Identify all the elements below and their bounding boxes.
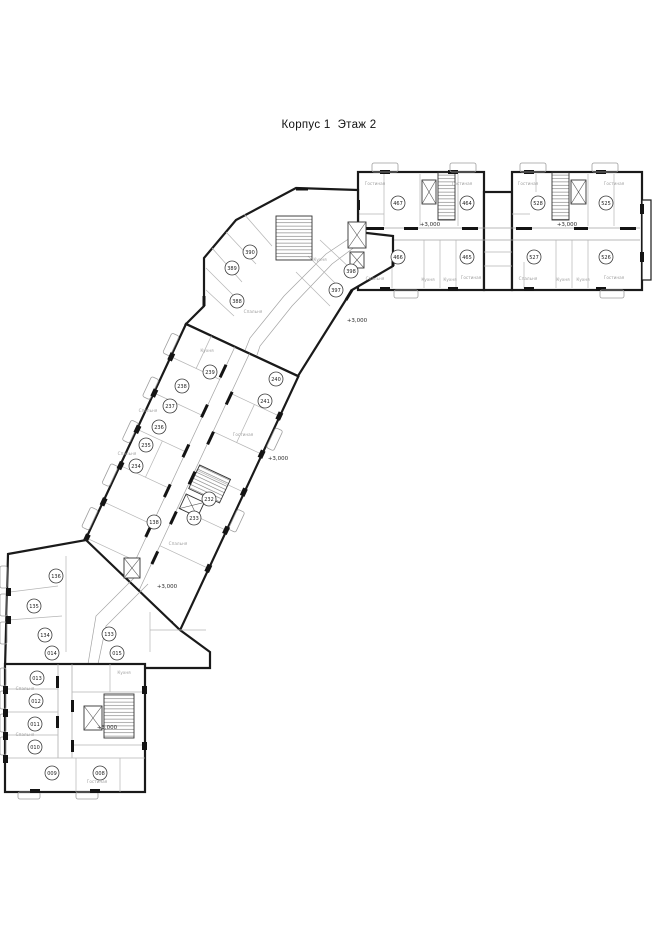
unit-marker-241[interactable]: 241: [258, 394, 272, 408]
elevator-shaft-corner: [348, 222, 366, 268]
stairwell-corner: [276, 216, 312, 260]
room-label: Гостиная: [604, 181, 625, 186]
unit-marker-238[interactable]: 238: [175, 379, 189, 393]
room-label: Спальня: [169, 541, 188, 546]
stairwell-south: [104, 694, 134, 738]
unit-marker-011[interactable]: 011: [28, 717, 42, 731]
unit-number: 237: [165, 404, 175, 410]
unit-marker-397[interactable]: 397: [329, 283, 343, 297]
unit-number: 466: [393, 255, 403, 261]
unit-marker-527[interactable]: 527: [527, 250, 541, 264]
elevator-shaft-transition: [124, 558, 140, 578]
elevator-shaft-a: [422, 180, 436, 204]
unit-marker-008[interactable]: 008: [93, 766, 107, 780]
room-label: Спальня: [366, 276, 385, 281]
unit-marker-009[interactable]: 009: [45, 766, 59, 780]
unit-marker-013[interactable]: 013: [30, 671, 44, 685]
unit-marker-467[interactable]: 467: [391, 196, 405, 210]
unit-marker-388[interactable]: 388: [230, 294, 244, 308]
room-label: Кухня: [443, 277, 457, 282]
unit-marker-389[interactable]: 389: [225, 261, 239, 275]
unit-marker-526[interactable]: 526: [599, 250, 613, 264]
unit-number: 232: [204, 497, 214, 503]
unit-number: 015: [112, 651, 122, 657]
unit-number: 397: [331, 288, 341, 294]
unit-marker-240[interactable]: 240: [269, 372, 283, 386]
room-label: Спальня: [519, 276, 538, 281]
unit-number: 138: [149, 520, 159, 526]
unit-number: 136: [51, 574, 61, 580]
unit-marker-525[interactable]: 525: [599, 196, 613, 210]
room-label: Гостиная: [233, 432, 254, 437]
unit-marker-233[interactable]: 233: [187, 511, 201, 525]
unit-number: 390: [245, 250, 255, 256]
unit-number: 389: [227, 266, 237, 272]
unit-number: 234: [131, 464, 141, 470]
unit-marker-133[interactable]: 133: [102, 627, 116, 641]
unit-number: 236: [154, 425, 164, 431]
unit-number: 009: [47, 771, 57, 777]
unit-marker-236[interactable]: 236: [152, 420, 166, 434]
unit-marker-015[interactable]: 015: [110, 646, 124, 660]
unit-number: 241: [260, 399, 270, 405]
unit-marker-237[interactable]: 237: [163, 399, 177, 413]
unit-number: 134: [40, 633, 50, 639]
unit-number: 239: [205, 370, 215, 376]
unit-number: 398: [346, 269, 356, 275]
unit-number: 465: [462, 255, 472, 261]
unit-marker-014[interactable]: 014: [45, 646, 59, 660]
room-label: Кухня: [576, 277, 590, 282]
elevation-mark: +3,000: [557, 222, 578, 228]
unit-number: 525: [601, 201, 611, 207]
unit-number: 013: [32, 676, 42, 682]
block-connector-outline: [484, 192, 512, 290]
unit-marker-235[interactable]: 235: [139, 438, 153, 452]
room-label: Гостиная: [365, 181, 386, 186]
stairwell-a: [438, 172, 455, 220]
elevation-mark: +3,000: [157, 584, 178, 590]
unit-marker-239[interactable]: 239: [203, 365, 217, 379]
unit-number: 238: [177, 384, 187, 390]
room-label: Спальня: [139, 408, 158, 413]
room-label: Спальня: [16, 686, 35, 691]
unit-marker-464[interactable]: 464: [460, 196, 474, 210]
floor-plan: ГостинаяГостинаяСпальняКухняКухняГостина…: [0, 0, 658, 932]
unit-number: 011: [30, 722, 40, 728]
drawing-page: Корпус 1 Этаж 2: [0, 0, 658, 932]
room-label: Гостиная: [452, 181, 473, 186]
unit-number: 135: [29, 604, 39, 610]
unit-number: 014: [47, 651, 57, 657]
unit-number: 008: [95, 771, 105, 777]
room-label: Кухня: [313, 257, 327, 262]
room-label: Кухня: [200, 348, 214, 353]
unit-number: 240: [271, 377, 281, 383]
unit-number: 464: [462, 201, 472, 207]
room-label: Спальня: [244, 309, 263, 314]
unit-number: 527: [529, 255, 539, 261]
elevation-mark: +3,000: [97, 725, 118, 731]
room-label: Гостиная: [604, 275, 625, 280]
unit-number: 133: [104, 632, 114, 638]
unit-marker-135[interactable]: 135: [27, 599, 41, 613]
room-label: Кухня: [117, 670, 131, 675]
unit-number: 528: [533, 201, 543, 207]
unit-marker-398[interactable]: 398: [344, 264, 358, 278]
room-label: Гостиная: [461, 275, 482, 280]
unit-marker-465[interactable]: 465: [460, 250, 474, 264]
room-label: Кухня: [556, 277, 570, 282]
unit-number: 467: [393, 201, 403, 207]
unit-marker-136[interactable]: 136: [49, 569, 63, 583]
unit-number: 010: [30, 745, 40, 751]
room-label: Гостиная: [518, 181, 539, 186]
unit-number: 233: [189, 516, 199, 522]
stairwell-b: [552, 172, 569, 220]
unit-number: 526: [601, 255, 611, 261]
unit-marker-010[interactable]: 010: [28, 740, 42, 754]
elevation-mark: +3,000: [420, 222, 441, 228]
unit-marker-390[interactable]: 390: [243, 245, 257, 259]
room-label: Кухня: [421, 277, 435, 282]
unit-number: 012: [31, 699, 41, 705]
unit-number: 235: [141, 443, 151, 449]
unit-marker-528[interactable]: 528: [531, 196, 545, 210]
unit-marker-138[interactable]: 138: [147, 515, 161, 529]
elevator-shaft-b: [571, 180, 586, 204]
unit-marker-466[interactable]: 466: [391, 250, 405, 264]
unit-marker-232[interactable]: 232: [202, 492, 216, 506]
elevation-mark: +3,000: [347, 318, 368, 324]
room-label: Спальня: [16, 732, 35, 737]
room-label: Спальня: [118, 451, 137, 456]
unit-marker-234[interactable]: 234: [129, 459, 143, 473]
unit-marker-134[interactable]: 134: [38, 628, 52, 642]
elevation-mark: +3,000: [268, 456, 289, 462]
unit-number: 388: [232, 299, 242, 305]
unit-marker-012[interactable]: 012: [29, 694, 43, 708]
